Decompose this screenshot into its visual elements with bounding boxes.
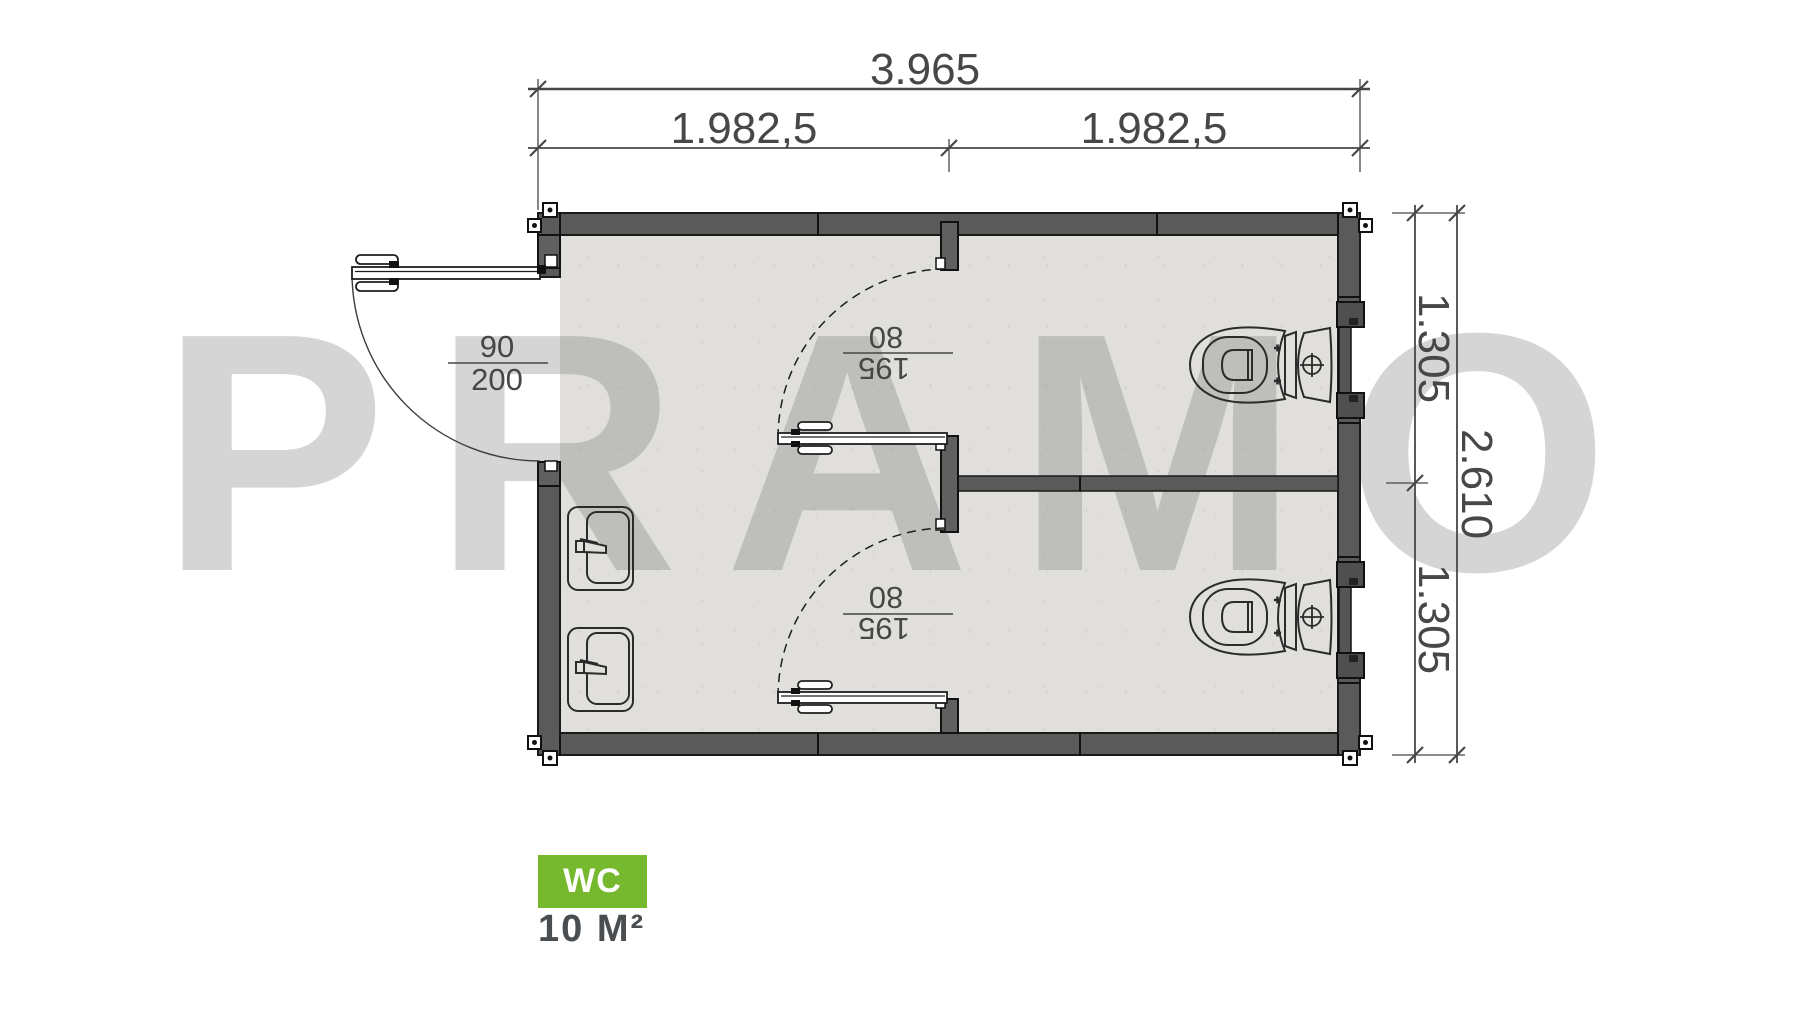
- stall-door-upper-height-label: 195: [858, 351, 910, 386]
- entry-door: [352, 255, 546, 461]
- window-lower-stall: [1337, 562, 1364, 678]
- faucet-icon: [576, 660, 606, 674]
- flush-symbol-icon: [1300, 605, 1324, 629]
- dim-left-half: 1.982,5: [671, 104, 818, 153]
- wall-left-lower: [538, 462, 560, 755]
- door-jambs: [538, 222, 958, 733]
- stall-door-lower-width-label: 80: [869, 580, 903, 615]
- dim-upper-stall-depth: 1.305: [1409, 293, 1458, 403]
- partition-horizontal: [947, 476, 1338, 491]
- faucet-icon: [576, 539, 606, 553]
- toilet-lower-stall: [1190, 579, 1332, 654]
- window-upper-stall: [1337, 302, 1364, 418]
- entry-door-width-label: 90: [480, 329, 514, 364]
- entry-door-height-label: 200: [471, 362, 523, 397]
- wall-bottom: [538, 733, 1360, 755]
- washbasin-upper: [568, 507, 633, 590]
- washbasin-lower: [568, 628, 633, 711]
- flush-symbol-icon: [1300, 353, 1324, 377]
- toilet-upper-stall: [1190, 327, 1332, 402]
- stall-door-lower-height-label: 195: [858, 611, 910, 646]
- dim-total-width: 3.965: [870, 45, 980, 94]
- wc-badge: WC: [538, 855, 647, 908]
- dim-total-depth: 2.610: [1452, 429, 1501, 539]
- dim-lower-stall-depth: 1.305: [1409, 564, 1458, 674]
- dim-right-half: 1.982,5: [1081, 104, 1228, 153]
- stall-door-upper-width-label: 80: [869, 320, 903, 355]
- floor-plan-drawing: 3.965 1.982,5 1.982,5 1.305 1.305 2.610 …: [0, 0, 1800, 1012]
- dimension-lines: [448, 79, 1465, 763]
- dimension-ticks: [530, 81, 1465, 763]
- area-label: 10 M²: [538, 908, 645, 951]
- door-label-lines: [448, 353, 953, 614]
- floor-plan-page: PRAMO: [0, 0, 1800, 1012]
